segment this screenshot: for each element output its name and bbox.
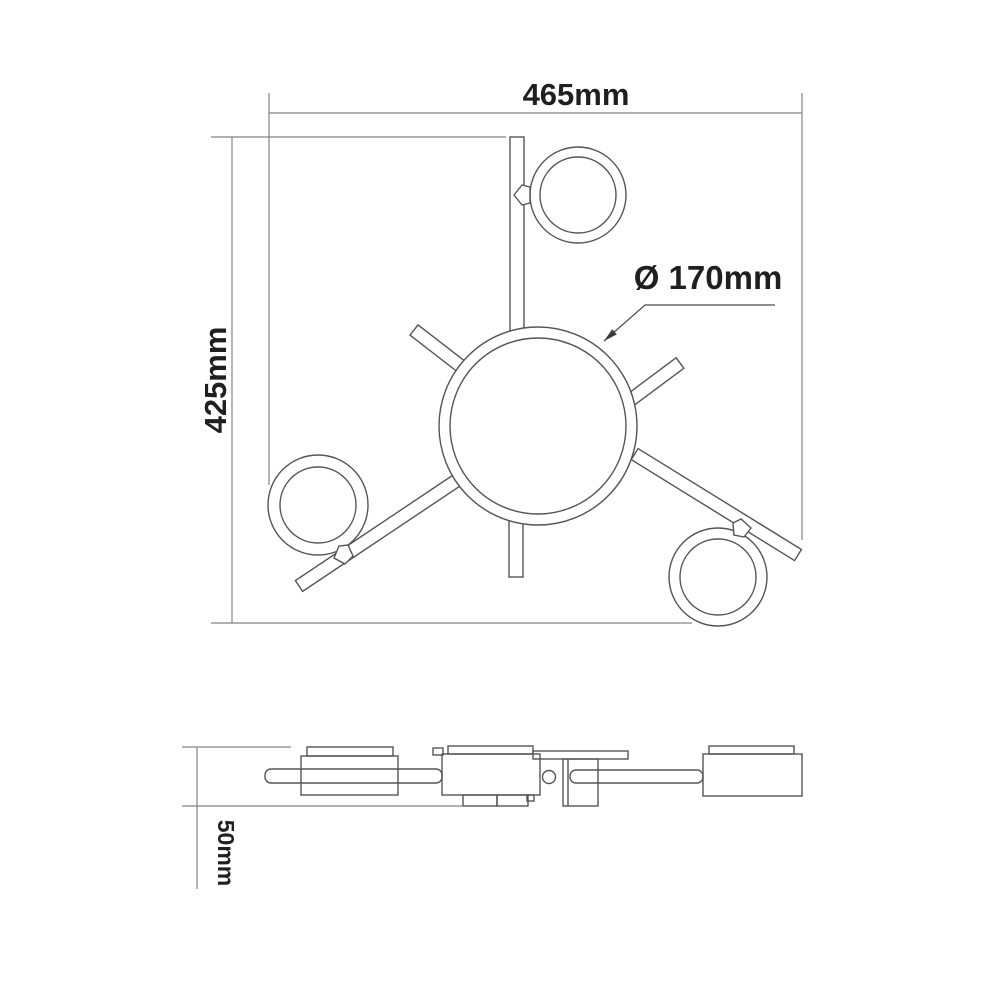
side-right-lamp-body (703, 754, 802, 796)
side-left-arm-bar (265, 769, 442, 783)
side-canopy-cap (448, 746, 533, 754)
bottom-right-ring-clip (733, 519, 751, 537)
top-ring-outer (530, 147, 626, 243)
height-dimension-label: 425mm (198, 327, 233, 434)
side-left-lamp-cap (307, 747, 393, 756)
lower-left-arm (295, 472, 464, 591)
width-dimension-label: 465mm (523, 77, 630, 112)
side-view: 50mm (182, 746, 802, 889)
side-swivel-joint (543, 771, 556, 784)
side-under-canopy-block-right (497, 795, 528, 806)
bottom-left-ring-inner (280, 467, 356, 543)
side-left-lamp-body (301, 756, 398, 795)
bottom-right-ring-outer (669, 528, 767, 626)
top-arm-rod (510, 137, 524, 333)
technical-drawing: 465mm 425mm (0, 0, 1000, 1000)
top-ring-clip (514, 185, 530, 205)
central-ring-outer (439, 327, 637, 525)
diameter-leader-line (604, 305, 775, 341)
side-right-arm-bar (570, 770, 703, 783)
bottom-arm-rod (509, 520, 523, 577)
top-view: 465mm 425mm (198, 77, 802, 626)
side-mounting-plate (533, 751, 628, 759)
top-ring-inner (540, 157, 616, 233)
side-canopy-body (442, 754, 540, 795)
diameter-dimension-label: Ø 170mm (634, 259, 783, 296)
bottom-left-ring-outer (268, 455, 368, 555)
bottom-left-ring-clip (334, 545, 353, 564)
side-right-lamp-cap (709, 746, 794, 754)
side-under-canopy-block-left (463, 795, 497, 806)
drawing-canvas: 465mm 425mm (0, 0, 1000, 1000)
depth-dimension-label: 50mm (213, 820, 239, 886)
bottom-right-ring-inner (680, 539, 756, 615)
lower-right-arm (631, 449, 801, 561)
